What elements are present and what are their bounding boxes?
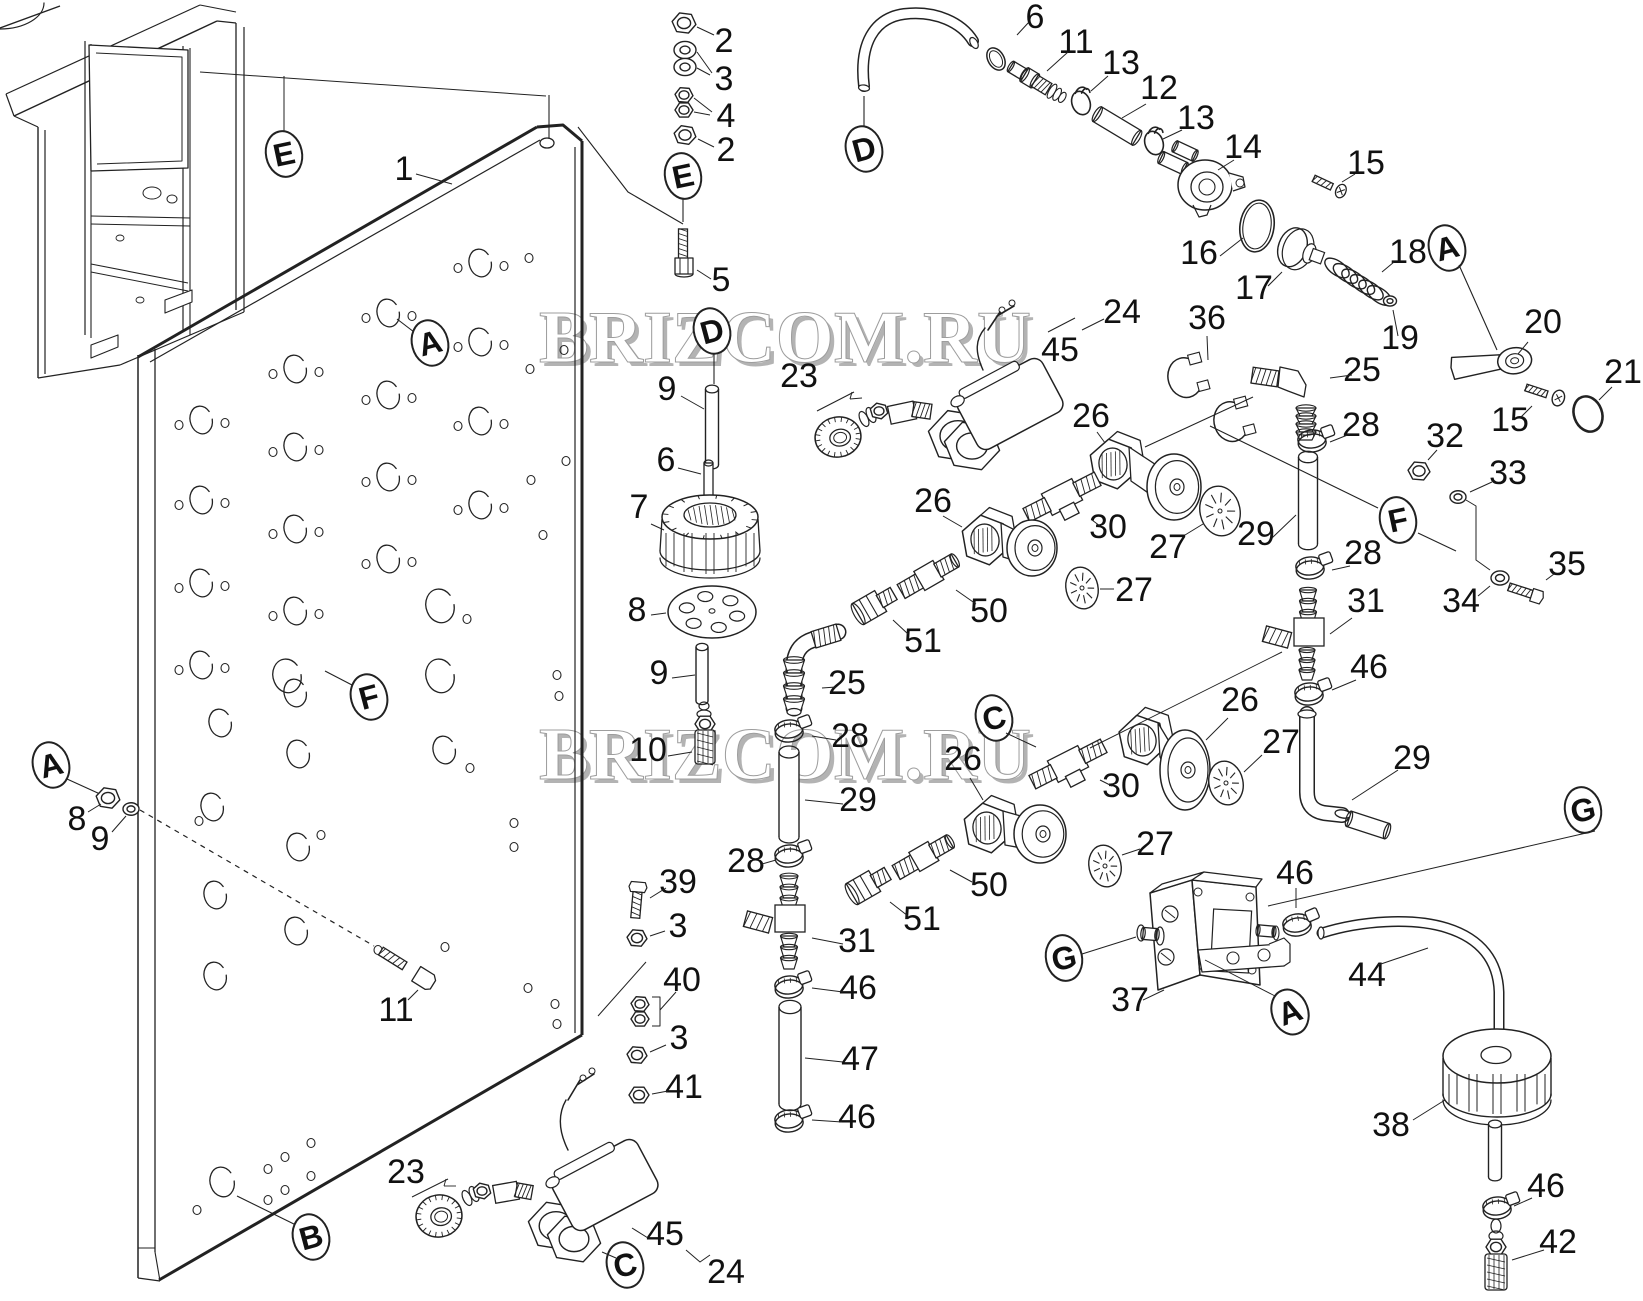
- svg-text:46: 46: [1527, 1167, 1565, 1205]
- svg-text:38: 38: [1372, 1106, 1410, 1144]
- svg-text:3: 3: [670, 1019, 689, 1057]
- svg-text:41: 41: [665, 1068, 703, 1106]
- svg-text:10: 10: [629, 731, 667, 769]
- svg-text:33: 33: [1489, 454, 1527, 492]
- svg-text:39: 39: [659, 863, 697, 901]
- svg-text:6: 6: [657, 441, 676, 479]
- svg-text:26: 26: [1221, 681, 1259, 719]
- svg-text:15: 15: [1347, 144, 1385, 182]
- svg-text:26: 26: [944, 740, 982, 778]
- svg-text:9: 9: [650, 654, 669, 692]
- svg-text:47: 47: [841, 1040, 879, 1078]
- svg-text:32: 32: [1426, 417, 1464, 455]
- svg-text:36: 36: [1188, 299, 1226, 337]
- svg-text:23: 23: [780, 357, 818, 395]
- svg-text:23: 23: [387, 1153, 425, 1191]
- svg-text:30: 30: [1102, 767, 1140, 805]
- svg-text:31: 31: [1347, 582, 1385, 620]
- svg-text:11: 11: [378, 991, 413, 1029]
- svg-text:17: 17: [1235, 269, 1273, 307]
- svg-text:6: 6: [1026, 0, 1045, 36]
- svg-text:30: 30: [1089, 508, 1127, 546]
- svg-text:27: 27: [1262, 723, 1300, 761]
- svg-text:4: 4: [717, 97, 736, 135]
- svg-text:8: 8: [68, 800, 87, 838]
- svg-text:27: 27: [1115, 571, 1153, 609]
- svg-text:46: 46: [839, 969, 877, 1007]
- svg-text:28: 28: [831, 717, 869, 755]
- svg-text:9: 9: [91, 820, 110, 858]
- svg-text:13: 13: [1177, 99, 1215, 137]
- svg-text:40: 40: [663, 961, 701, 999]
- svg-text:46: 46: [838, 1098, 876, 1136]
- svg-text:2: 2: [715, 22, 734, 60]
- svg-text:50: 50: [970, 592, 1008, 630]
- svg-text:29: 29: [839, 781, 877, 819]
- svg-text:51: 51: [904, 622, 942, 660]
- svg-text:12: 12: [1140, 69, 1178, 107]
- svg-text:27: 27: [1149, 528, 1187, 566]
- svg-text:25: 25: [828, 664, 866, 702]
- svg-text:26: 26: [1072, 397, 1110, 435]
- svg-text:34: 34: [1442, 582, 1480, 620]
- svg-text:9: 9: [658, 370, 677, 408]
- svg-text:31: 31: [838, 922, 876, 960]
- svg-text:15: 15: [1491, 401, 1529, 439]
- svg-text:2: 2: [717, 131, 736, 169]
- svg-text:20: 20: [1524, 303, 1562, 341]
- svg-text:3: 3: [715, 60, 734, 98]
- svg-text:51: 51: [903, 900, 941, 938]
- svg-text:25: 25: [1343, 351, 1381, 389]
- svg-text:14: 14: [1224, 128, 1262, 166]
- svg-text:45: 45: [646, 1215, 684, 1253]
- svg-text:24: 24: [707, 1253, 745, 1291]
- svg-text:29: 29: [1237, 515, 1275, 553]
- svg-text:5: 5: [712, 261, 731, 299]
- svg-text:27: 27: [1136, 825, 1174, 863]
- svg-text:45: 45: [1041, 331, 1079, 369]
- svg-text:26: 26: [914, 482, 952, 520]
- svg-text:35: 35: [1548, 545, 1586, 583]
- svg-text:29: 29: [1393, 739, 1431, 777]
- svg-text:3: 3: [669, 907, 688, 945]
- svg-text:44: 44: [1348, 956, 1386, 994]
- svg-text:18: 18: [1389, 233, 1427, 271]
- svg-text:50: 50: [970, 866, 1008, 904]
- svg-text:16: 16: [1180, 234, 1218, 272]
- svg-text:46: 46: [1276, 854, 1314, 892]
- svg-text:7: 7: [630, 488, 649, 526]
- svg-text:42: 42: [1539, 1223, 1577, 1261]
- svg-text:1: 1: [395, 150, 414, 188]
- svg-text:24: 24: [1103, 293, 1141, 331]
- svg-text:28: 28: [727, 842, 765, 880]
- svg-text:19: 19: [1381, 319, 1419, 357]
- svg-text:28: 28: [1342, 406, 1380, 444]
- svg-text:21: 21: [1604, 353, 1642, 391]
- svg-text:8: 8: [628, 591, 647, 629]
